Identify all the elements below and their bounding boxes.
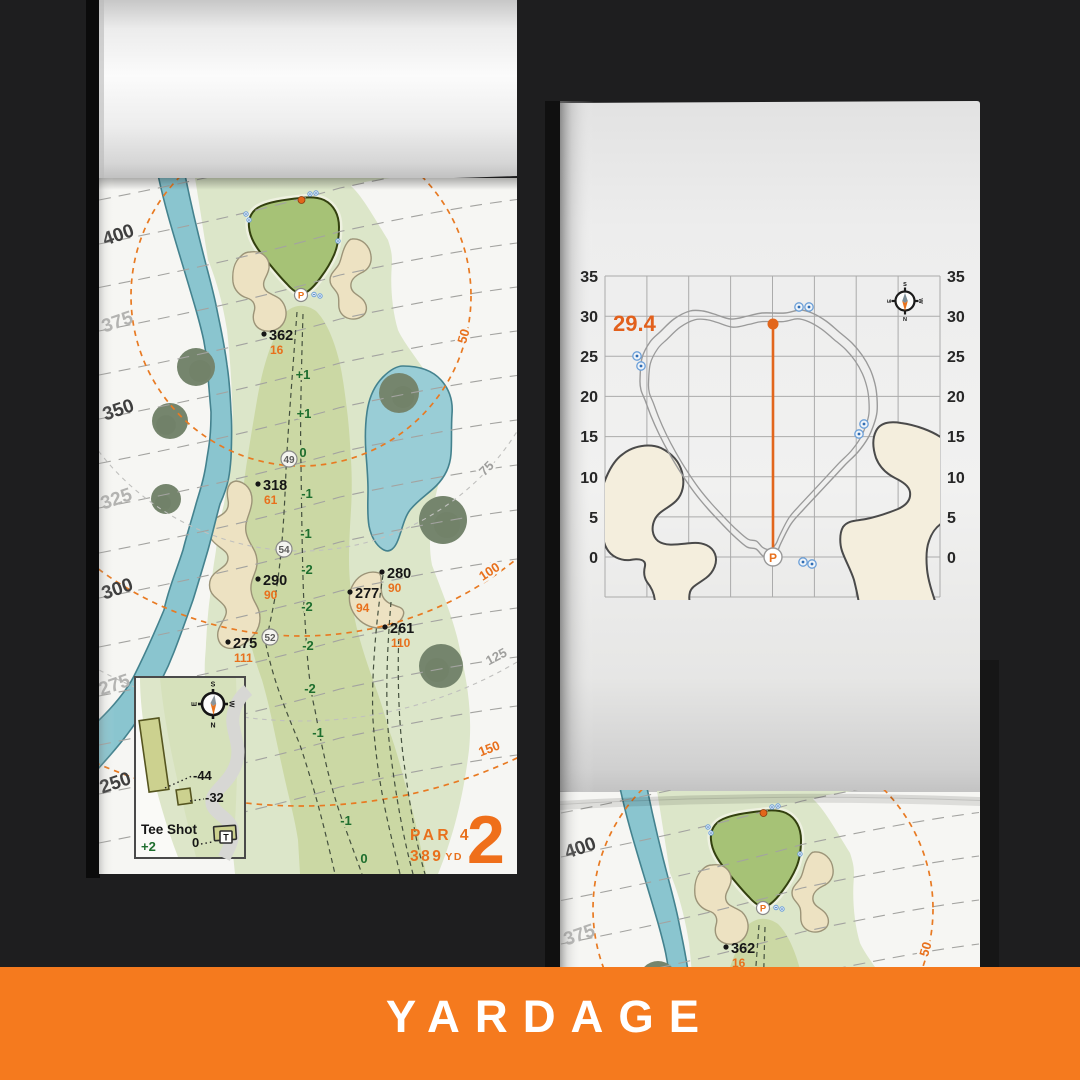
svg-text:25: 25	[947, 349, 965, 366]
svg-text:N: N	[903, 317, 907, 323]
svg-text:S: S	[903, 282, 907, 288]
svg-text:35: 35	[580, 269, 598, 286]
svg-text:35: 35	[947, 269, 965, 286]
svg-text:15: 15	[947, 429, 965, 446]
svg-text:P: P	[769, 551, 777, 565]
svg-text:10: 10	[580, 470, 598, 487]
svg-text:29.4: 29.4	[613, 311, 657, 336]
svg-text:15: 15	[580, 429, 598, 446]
svg-text:30: 30	[947, 309, 965, 326]
svg-text:0: 0	[947, 550, 956, 567]
svg-text:5: 5	[589, 510, 598, 527]
svg-text:5: 5	[947, 510, 956, 527]
svg-text:25: 25	[580, 349, 598, 366]
svg-text:0: 0	[589, 550, 598, 567]
svg-text:E: E	[887, 299, 893, 303]
svg-text:W: W	[917, 298, 923, 304]
svg-text:10: 10	[947, 470, 965, 487]
svg-text:YARDAGE: YARDAGE	[386, 991, 714, 1042]
svg-text:30: 30	[580, 309, 598, 326]
svg-text:20: 20	[947, 389, 965, 406]
svg-text:20: 20	[580, 389, 598, 406]
